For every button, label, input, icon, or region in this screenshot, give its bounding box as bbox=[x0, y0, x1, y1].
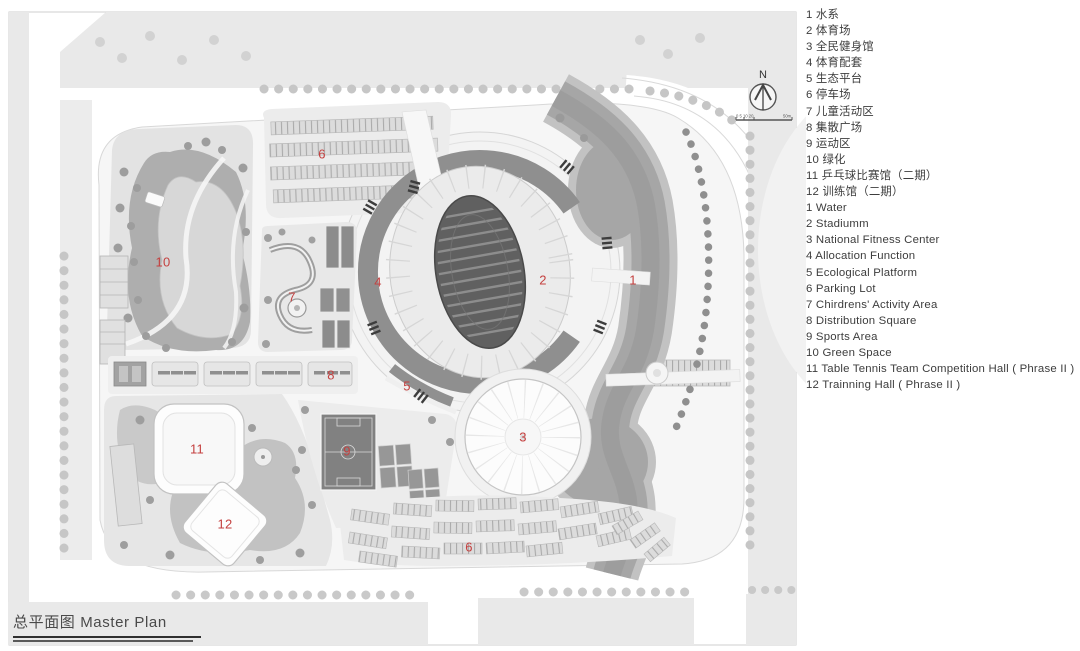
plan-label-stadium: 2 bbox=[539, 274, 547, 287]
drawing-title-block: 总平面图 Master Plan bbox=[13, 611, 201, 642]
legend-item-zh-7: 7 儿童活动区 bbox=[806, 104, 1076, 120]
plan-label-children-area: 7 bbox=[288, 291, 296, 304]
legend-item-en-5: 5 Ecological Platform bbox=[806, 265, 1076, 281]
legend-item-en-6: 6 Parking Lot bbox=[806, 281, 1076, 297]
site-plan-drawing: N 0 5 10 20 50m bbox=[0, 0, 806, 651]
plan-label-training-hall: 12 bbox=[217, 518, 232, 531]
title-underline-2 bbox=[13, 640, 193, 642]
drawing-title: 总平面图 Master Plan bbox=[13, 611, 201, 632]
plan-label-allocation: 4 bbox=[374, 276, 382, 289]
legend-item-en-9: 9 Sports Area bbox=[806, 329, 1076, 345]
legend-item-zh-5: 5 生态平台 bbox=[806, 71, 1076, 87]
legend-item-en-11: 11 Table Tennis Team Competition Hall ( … bbox=[806, 361, 1076, 377]
legend-item-zh-6: 6 停车场 bbox=[806, 87, 1076, 103]
legend-item-en-4: 4 Allocation Function bbox=[806, 248, 1076, 264]
plan-label-green-space: 10 bbox=[155, 256, 170, 269]
legend-item-zh-12: 12 训练馆（二期） bbox=[806, 184, 1076, 200]
plan-label-parking-north: 6 bbox=[318, 148, 326, 161]
plan-label-distribution-sq: 8 bbox=[327, 369, 335, 382]
legend-item-en-2: 2 Stadiumm bbox=[806, 216, 1076, 232]
legend-item-zh-10: 10 绿化 bbox=[806, 152, 1076, 168]
plan-label-fitness-center: 3 bbox=[519, 431, 527, 444]
plan-label-parking-south: 6 bbox=[465, 541, 473, 554]
plan-label-tt-hall: 11 bbox=[190, 443, 204, 456]
plan-label-eco-platform: 5 bbox=[403, 380, 411, 393]
childrens-activity-area bbox=[258, 222, 357, 352]
legend-item-zh-9: 9 运动区 bbox=[806, 136, 1076, 152]
legend: 1 水系 2 体育场 3 全民健身馆 4 体育配套 5 生态平台 6 停车场 7… bbox=[806, 7, 1076, 393]
legend-item-en-3: 3 National Fitness Center bbox=[806, 232, 1076, 248]
legend-item-en-12: 12 Trainning Hall ( Phrase II ) bbox=[806, 377, 1076, 393]
legend-item-en-10: 10 Green Space bbox=[806, 345, 1076, 361]
plan-label-sports-area: 9 bbox=[343, 445, 351, 458]
green-space-lake bbox=[100, 125, 253, 364]
legend-item-zh-4: 4 体育配套 bbox=[806, 55, 1076, 71]
legend-item-zh-8: 8 集散广场 bbox=[806, 120, 1076, 136]
svg-text:50m: 50m bbox=[783, 114, 792, 119]
legend-item-zh-1: 1 水系 bbox=[806, 7, 1076, 23]
legend-item-en-1: 1 Water bbox=[806, 200, 1076, 216]
svg-text:N: N bbox=[759, 69, 767, 81]
legend-item-zh-2: 2 体育场 bbox=[806, 23, 1076, 39]
legend-item-zh-3: 3 全民健身馆 bbox=[806, 39, 1076, 55]
master-plan-page: N 0 5 10 20 50m 1 2 3 4 5 6 7 8 9 10 11 … bbox=[0, 0, 1080, 651]
plan-label-water: 1 bbox=[629, 274, 637, 287]
legend-item-en-8: 8 Distribution Square bbox=[806, 313, 1076, 329]
bottom-parking-lot bbox=[338, 495, 676, 567]
svg-text:0 5 10 20: 0 5 10 20 bbox=[736, 114, 754, 119]
legend-item-zh-11: 11 乒乓球比赛馆（二期） bbox=[806, 168, 1076, 184]
title-underline bbox=[13, 636, 201, 638]
legend-item-en-7: 7 Chirdrens' Activity Area bbox=[806, 297, 1076, 313]
